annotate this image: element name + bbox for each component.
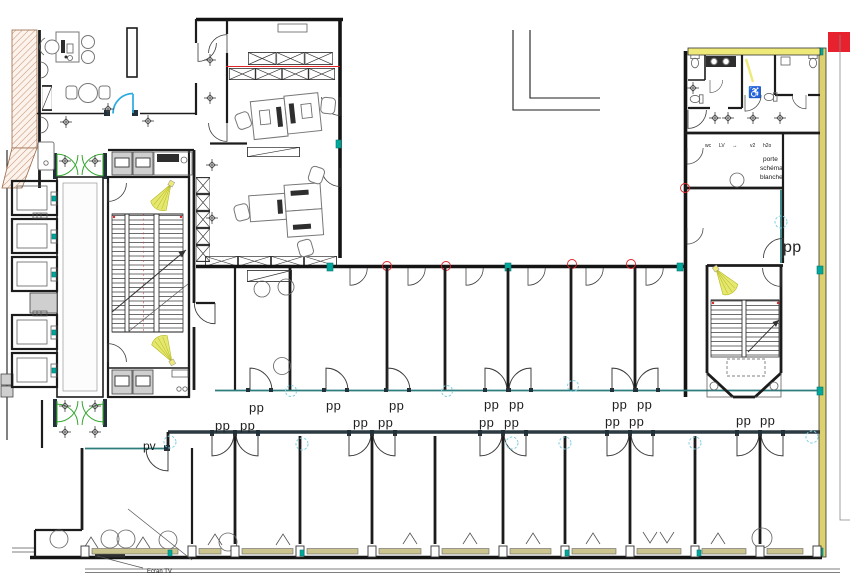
label-pp: pp	[629, 414, 644, 429]
visitor-chair	[82, 51, 95, 64]
label-wc-note: LV	[719, 143, 725, 149]
label-pp: pp	[389, 398, 404, 413]
yellow-door-leaf	[746, 59, 753, 82]
shelf	[247, 147, 299, 156]
floor-plan-page: pppppppppppppppppppppppppppppppppppppvEc…	[0, 0, 850, 581]
label-pp: pp	[326, 398, 341, 413]
open-office-area	[196, 19, 343, 266]
label-pp: pp	[637, 397, 652, 412]
window-sills	[81, 546, 821, 557]
toilet-icon	[809, 55, 817, 68]
label-porte-note: blanche	[760, 174, 783, 181]
label-pv: pv	[143, 439, 156, 453]
ceiling-light-cone-icon	[150, 333, 182, 370]
bottom-rooms	[35, 400, 821, 568]
reception-desk	[40, 32, 79, 62]
wall-door-leaf-icon	[40, 117, 48, 133]
floor-plan-canvas: pppppppppppppppppppppppppppppppppppppvEc…	[0, 0, 850, 581]
entry-door-blue	[113, 94, 133, 114]
annotations-layer: pppppppppppppppppppppppppppppppppppppvEc…	[143, 86, 802, 575]
cabinet	[42, 86, 52, 110]
label-pp: pp	[215, 418, 230, 433]
label-pp: pp	[605, 414, 620, 429]
elevator-shafts	[12, 181, 57, 387]
label-porte-note: schéma	[760, 165, 783, 172]
desk-cluster	[232, 91, 339, 142]
label-pp: pp	[353, 415, 368, 430]
label-wc-note: →	[732, 143, 738, 149]
accessible-icon: ♿	[748, 86, 762, 99]
label-pp: pp	[484, 397, 499, 412]
wall-door-leaf-icon	[40, 62, 48, 78]
label-pp: pp	[760, 413, 775, 428]
label-pp: pp	[612, 397, 627, 412]
label-pp: pp	[240, 418, 255, 433]
ceiling-light-cone-icon	[149, 177, 181, 214]
elevator-core	[12, 142, 107, 438]
label-pp: pp	[783, 239, 802, 256]
red-corner-marker	[828, 32, 850, 52]
label-pp: pp	[378, 415, 393, 430]
label-pp: pp	[479, 415, 494, 430]
toilet-icon	[691, 55, 699, 68]
label-ecran-tv: Ecran TV	[147, 569, 172, 575]
right-rooms	[681, 133, 788, 263]
label-pp: pp	[509, 397, 524, 412]
label-porte-note: porte	[763, 156, 778, 163]
label-wc-note: wc	[705, 143, 712, 149]
label-pp: pp	[736, 413, 751, 428]
courtyard	[513, 30, 600, 110]
label-pp: pp	[504, 415, 519, 430]
label-pp: pp	[249, 400, 264, 415]
hatched-wall	[1, 30, 37, 397]
label-wc-note: h2o	[763, 143, 772, 149]
toilet-icon	[690, 95, 703, 103]
round-table-set	[66, 84, 110, 103]
label-wc-note: v2	[750, 143, 756, 149]
secondary-staircase	[707, 261, 783, 397]
desk-cluster	[231, 164, 332, 262]
visitor-chair	[82, 36, 95, 49]
main-staircase	[108, 150, 194, 397]
